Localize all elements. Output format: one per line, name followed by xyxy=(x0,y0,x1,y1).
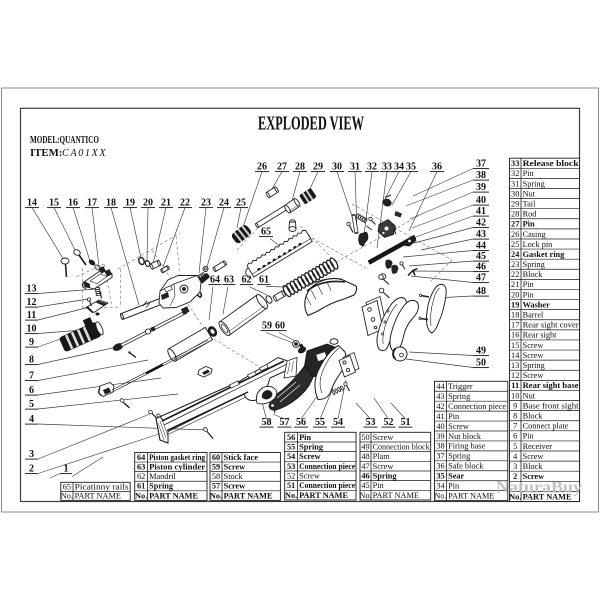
svg-text:20: 20 xyxy=(511,290,519,299)
svg-text:Piston cylinder: Piston cylinder xyxy=(149,463,205,472)
svg-text:26: 26 xyxy=(257,161,267,172)
svg-text:35: 35 xyxy=(406,161,416,172)
svg-text:Casing: Casing xyxy=(523,230,546,239)
svg-text:MODEL:QUANTICO: MODEL:QUANTICO xyxy=(30,134,99,146)
svg-text:PART NAME: PART NAME xyxy=(373,491,419,500)
svg-text:40: 40 xyxy=(476,195,486,206)
svg-text:7: 7 xyxy=(29,370,34,381)
svg-text:61: 61 xyxy=(137,482,145,491)
svg-text:Spring: Spring xyxy=(523,260,545,269)
svg-text:19: 19 xyxy=(511,300,519,309)
svg-text:12: 12 xyxy=(511,371,519,380)
svg-text:49: 49 xyxy=(361,443,369,452)
svg-text:6: 6 xyxy=(29,385,34,396)
svg-text:PART NAME: PART NAME xyxy=(448,491,494,500)
svg-text:60: 60 xyxy=(275,320,285,331)
svg-text:47: 47 xyxy=(361,462,369,471)
svg-text:47: 47 xyxy=(476,272,486,283)
svg-text:EXPLODED VIEW: EXPLODED VIEW xyxy=(258,114,364,135)
svg-text:3: 3 xyxy=(29,449,34,460)
svg-text:45: 45 xyxy=(476,251,486,262)
svg-text:41: 41 xyxy=(436,412,444,421)
svg-text:55: 55 xyxy=(287,443,295,452)
svg-text:5: 5 xyxy=(513,442,517,451)
svg-text:Sear: Sear xyxy=(448,472,464,481)
svg-text:35: 35 xyxy=(436,472,444,481)
svg-text:16: 16 xyxy=(68,197,78,208)
svg-text:Block: Block xyxy=(523,462,544,471)
svg-text:21: 21 xyxy=(161,197,171,208)
svg-text:62: 62 xyxy=(242,274,252,285)
svg-text:PART NAME: PART NAME xyxy=(224,491,273,500)
svg-text:Screw: Screw xyxy=(299,472,320,481)
svg-text:Spring: Spring xyxy=(523,361,545,370)
svg-text:46: 46 xyxy=(476,261,486,272)
svg-text:39: 39 xyxy=(436,432,444,441)
svg-text:9: 9 xyxy=(29,337,34,348)
svg-text:Rod: Rod xyxy=(523,210,538,219)
svg-text:1: 1 xyxy=(64,463,69,474)
svg-text:No.: No. xyxy=(285,491,297,500)
svg-text:37: 37 xyxy=(436,452,444,461)
svg-text:18: 18 xyxy=(511,311,519,320)
svg-text:45: 45 xyxy=(361,481,369,490)
svg-text:Connection block: Connection block xyxy=(373,443,431,452)
svg-text:NaturaBuy: NaturaBuy xyxy=(496,478,583,497)
svg-text:15: 15 xyxy=(49,197,59,208)
svg-text:31: 31 xyxy=(511,179,519,188)
svg-text:Spring: Spring xyxy=(448,392,470,401)
svg-text:Mandril: Mandril xyxy=(149,472,176,481)
svg-text:No.: No. xyxy=(61,491,73,500)
svg-text:No.: No. xyxy=(434,491,446,500)
svg-text:65: 65 xyxy=(261,226,271,237)
svg-text:28: 28 xyxy=(295,161,305,172)
svg-text:Rear sight: Rear sight xyxy=(523,331,558,340)
svg-text:Screw: Screw xyxy=(224,482,246,491)
svg-text:8: 8 xyxy=(513,412,517,421)
svg-text:Spring: Spring xyxy=(299,443,324,452)
svg-text:Spring: Spring xyxy=(448,452,470,461)
svg-text:11: 11 xyxy=(511,381,519,390)
svg-text:22: 22 xyxy=(180,197,190,208)
svg-text:32: 32 xyxy=(367,161,377,172)
svg-text:PART NAME: PART NAME xyxy=(149,491,198,500)
svg-text:50: 50 xyxy=(361,433,369,442)
svg-text:28: 28 xyxy=(511,210,519,219)
svg-text:Screw: Screw xyxy=(523,341,544,350)
svg-text:52: 52 xyxy=(287,472,295,481)
svg-text:48: 48 xyxy=(361,452,369,461)
svg-text:Pin: Pin xyxy=(523,432,535,441)
svg-text:38: 38 xyxy=(436,442,444,451)
svg-text:51: 51 xyxy=(401,417,411,428)
svg-text:Connection piece: Connection piece xyxy=(299,462,355,471)
svg-text:No.: No. xyxy=(135,491,147,500)
svg-text:54: 54 xyxy=(333,417,343,428)
svg-text:63: 63 xyxy=(224,274,234,285)
svg-text:20: 20 xyxy=(143,197,153,208)
svg-text:52: 52 xyxy=(384,417,394,428)
svg-text:Pin: Pin xyxy=(523,169,535,178)
svg-text:31: 31 xyxy=(350,161,360,172)
svg-text:17: 17 xyxy=(511,321,519,330)
svg-text:Firing base: Firing base xyxy=(448,442,485,451)
svg-text:56: 56 xyxy=(296,417,306,428)
svg-text:30: 30 xyxy=(511,189,519,198)
svg-text:Nut: Nut xyxy=(523,391,536,400)
svg-text:Nut: Nut xyxy=(523,189,536,198)
svg-text:Screw: Screw xyxy=(224,463,246,472)
svg-text:34: 34 xyxy=(394,161,404,172)
svg-text:11: 11 xyxy=(27,310,36,321)
svg-text:30: 30 xyxy=(332,161,342,172)
svg-text:65: 65 xyxy=(63,482,71,491)
svg-text:54: 54 xyxy=(287,452,295,461)
svg-text:34: 34 xyxy=(436,481,445,490)
svg-text:24: 24 xyxy=(511,250,519,259)
svg-text:57: 57 xyxy=(212,482,220,491)
svg-text:40: 40 xyxy=(436,422,444,431)
svg-text:Screw: Screw xyxy=(373,462,394,471)
svg-text:42: 42 xyxy=(476,217,486,228)
svg-text:Washer: Washer xyxy=(523,300,551,309)
svg-text:18: 18 xyxy=(106,197,116,208)
svg-text:2: 2 xyxy=(29,463,34,474)
svg-text:Spring: Spring xyxy=(149,482,174,491)
svg-text:24: 24 xyxy=(219,197,229,208)
svg-text:Screw: Screw xyxy=(448,422,469,431)
svg-text:27: 27 xyxy=(511,220,519,229)
svg-text:39: 39 xyxy=(476,182,486,193)
svg-text:3: 3 xyxy=(513,462,517,471)
svg-text:Plam: Plam xyxy=(373,452,391,461)
svg-text:63: 63 xyxy=(137,463,145,472)
svg-text:13: 13 xyxy=(27,283,37,294)
svg-text:58: 58 xyxy=(262,417,272,428)
svg-text:Block: Block xyxy=(523,270,544,279)
svg-text:10: 10 xyxy=(511,391,519,400)
svg-text:No.: No. xyxy=(359,491,371,500)
svg-text:25: 25 xyxy=(511,240,519,249)
svg-text:51: 51 xyxy=(287,481,295,490)
svg-text:PART NAME: PART NAME xyxy=(299,491,348,500)
svg-text:60: 60 xyxy=(212,453,220,462)
svg-text:Barrel: Barrel xyxy=(523,311,544,320)
svg-text:Trigger: Trigger xyxy=(448,382,473,391)
svg-text:Pin: Pin xyxy=(373,481,385,490)
svg-text:Safe block: Safe block xyxy=(448,462,484,471)
svg-text:5: 5 xyxy=(29,399,34,410)
svg-text:43: 43 xyxy=(436,392,444,401)
svg-text:Rear sight cover: Rear sight cover xyxy=(523,321,579,330)
svg-text:59: 59 xyxy=(262,320,272,331)
svg-text:37: 37 xyxy=(476,158,486,169)
svg-text:Lock pin: Lock pin xyxy=(523,240,554,249)
svg-text:14: 14 xyxy=(27,197,37,208)
svg-text:Stock: Stock xyxy=(224,472,244,481)
svg-text:Spring: Spring xyxy=(523,179,545,188)
svg-text:23: 23 xyxy=(201,197,211,208)
svg-text:Receiver: Receiver xyxy=(523,442,553,451)
svg-text:9: 9 xyxy=(513,401,517,410)
svg-text:Pin: Pin xyxy=(448,412,460,421)
svg-text:23: 23 xyxy=(511,260,519,269)
svg-text:46: 46 xyxy=(361,472,369,481)
svg-text:48: 48 xyxy=(476,286,486,297)
svg-text:Spring: Spring xyxy=(373,472,398,481)
svg-text:57: 57 xyxy=(280,417,290,428)
svg-text:64: 64 xyxy=(137,453,145,462)
svg-text:12: 12 xyxy=(27,297,37,308)
svg-text:38: 38 xyxy=(476,170,486,181)
svg-text:Block: Block xyxy=(523,412,544,421)
svg-text:53: 53 xyxy=(287,462,295,471)
svg-text:36: 36 xyxy=(432,161,442,172)
svg-text:6: 6 xyxy=(513,432,517,441)
svg-text:Pin: Pin xyxy=(299,433,311,442)
svg-text:62: 62 xyxy=(137,472,145,481)
svg-text:Connect plate: Connect plate xyxy=(523,422,569,431)
svg-text:42: 42 xyxy=(436,402,444,411)
svg-text:33: 33 xyxy=(511,159,519,168)
svg-text:43: 43 xyxy=(476,229,486,240)
svg-text:PART NAME: PART NAME xyxy=(75,491,121,500)
svg-text:13: 13 xyxy=(511,361,519,370)
svg-text:15: 15 xyxy=(511,341,519,350)
svg-text:Rear sight base: Rear sight base xyxy=(523,381,579,390)
svg-text:Screw: Screw xyxy=(373,433,394,442)
svg-text:Stick face: Stick face xyxy=(224,453,259,462)
svg-text:Tail: Tail xyxy=(523,199,536,208)
svg-text:19: 19 xyxy=(125,197,135,208)
svg-text:59: 59 xyxy=(212,463,220,472)
svg-text:Pin: Pin xyxy=(523,280,535,289)
svg-text:Pin: Pin xyxy=(448,481,460,490)
svg-text:Pin: Pin xyxy=(523,220,535,229)
svg-text:10: 10 xyxy=(27,323,37,334)
svg-text:CA01XX: CA01XX xyxy=(62,148,107,159)
svg-text:44: 44 xyxy=(436,382,445,391)
svg-text:Release block: Release block xyxy=(523,159,579,168)
svg-text:49: 49 xyxy=(476,345,486,356)
svg-text:55: 55 xyxy=(315,417,325,428)
svg-text:Gasket ring: Gasket ring xyxy=(523,250,566,259)
svg-text:Connection piece: Connection piece xyxy=(448,402,506,411)
svg-text:ITEM:: ITEM: xyxy=(30,147,62,159)
svg-text:Picatinny rails: Picatinny rails xyxy=(75,482,129,491)
svg-text:Screw: Screw xyxy=(523,452,544,461)
svg-text:50: 50 xyxy=(476,357,486,368)
svg-text:33: 33 xyxy=(382,161,392,172)
svg-text:27: 27 xyxy=(277,161,287,172)
svg-text:56: 56 xyxy=(287,433,295,442)
svg-text:22: 22 xyxy=(511,270,519,279)
svg-text:41: 41 xyxy=(476,206,486,217)
svg-text:44: 44 xyxy=(476,240,486,251)
svg-text:No.: No. xyxy=(210,491,222,500)
svg-text:7: 7 xyxy=(513,422,517,431)
svg-text:14: 14 xyxy=(511,351,520,360)
svg-text:Piston gasket ring: Piston gasket ring xyxy=(149,453,206,462)
svg-text:Base front sight: Base front sight xyxy=(523,401,580,410)
svg-text:36: 36 xyxy=(436,462,444,471)
svg-text:8: 8 xyxy=(29,354,34,365)
svg-text:26: 26 xyxy=(511,230,519,239)
svg-text:Nut block: Nut block xyxy=(448,432,482,441)
svg-text:16: 16 xyxy=(511,331,519,340)
svg-text:29: 29 xyxy=(313,161,323,172)
svg-text:25: 25 xyxy=(236,197,246,208)
svg-text:Connection piece: Connection piece xyxy=(299,481,355,490)
svg-text:61: 61 xyxy=(259,274,269,285)
svg-text:53: 53 xyxy=(366,417,376,428)
svg-text:58: 58 xyxy=(212,472,220,481)
svg-text:17: 17 xyxy=(87,197,97,208)
svg-text:32: 32 xyxy=(511,169,519,178)
svg-text:21: 21 xyxy=(511,280,519,289)
svg-text:29: 29 xyxy=(511,199,519,208)
svg-text:Screw: Screw xyxy=(523,371,544,380)
svg-text:64: 64 xyxy=(210,274,220,285)
svg-text:Screw: Screw xyxy=(523,351,544,360)
svg-text:4: 4 xyxy=(29,414,34,425)
svg-text:Screw: Screw xyxy=(299,452,321,461)
svg-text:Pin: Pin xyxy=(523,290,535,299)
